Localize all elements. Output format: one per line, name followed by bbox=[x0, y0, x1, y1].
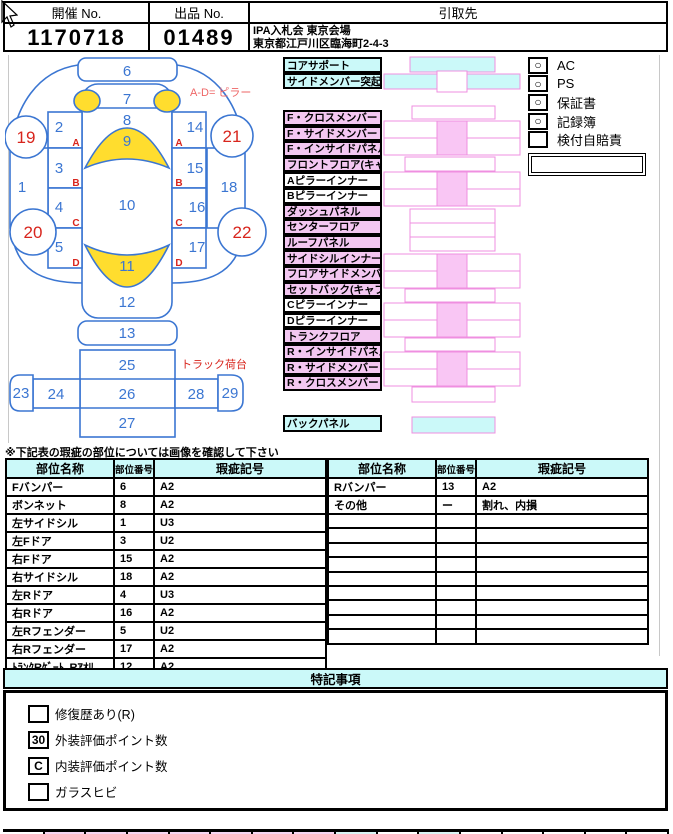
mirror-right bbox=[154, 90, 180, 112]
part-name-cell: 右サイドシル bbox=[6, 568, 114, 586]
auction-no-value: 1170718 bbox=[5, 24, 150, 52]
part-name-cell bbox=[328, 586, 436, 600]
zone-number: 10 bbox=[119, 197, 136, 214]
part-label-box: センターフロア bbox=[283, 219, 382, 235]
part-name-cell: 右Rドア bbox=[6, 604, 114, 622]
defect-code-cell bbox=[476, 629, 648, 643]
lot-no-value: 01489 bbox=[150, 24, 250, 52]
zone-number: 18 bbox=[221, 179, 238, 196]
option-label: 保証書 bbox=[557, 93, 596, 112]
option-label: 記録簿 bbox=[557, 112, 596, 131]
table-row: 左Rドア4U3 bbox=[6, 586, 326, 604]
special-item-label: 修復歴あり(R) bbox=[55, 704, 135, 723]
part-label-box: サイドメンバー突起部 bbox=[283, 73, 382, 89]
truck-bed-label: トラック荷台 bbox=[181, 357, 247, 371]
special-item: 30外装評価ポイント数 bbox=[28, 730, 168, 749]
zone-number: 5 bbox=[55, 239, 63, 256]
special-item-box[interactable]: 30 bbox=[28, 731, 49, 749]
options-panel: ○AC○PS○保証書○記録簿検付自賠責 bbox=[528, 56, 660, 149]
part-name-cell: ボンネット bbox=[6, 496, 114, 514]
part-name-cell bbox=[328, 557, 436, 571]
part-number-cell: 18 bbox=[114, 568, 154, 586]
option-row: ○記録簿 bbox=[528, 112, 660, 131]
defect-table-header-row: 部位名称部位番号瑕疵記号 bbox=[328, 459, 648, 478]
defect-code-cell: A2 bbox=[154, 604, 326, 622]
part-name-cell bbox=[328, 615, 436, 629]
zone-number: 16 bbox=[189, 199, 206, 216]
pillar-letter: A bbox=[175, 138, 182, 149]
part-number-cell: 3 bbox=[114, 532, 154, 550]
pillar-letter: B bbox=[72, 178, 79, 189]
option-checkbox[interactable] bbox=[528, 131, 548, 148]
part-label-box: Bピラーインナー bbox=[283, 188, 382, 204]
part-name-cell: 右Rフェンダー bbox=[6, 640, 114, 658]
table-row bbox=[328, 528, 648, 542]
part-label-box: サイドシルインナー bbox=[283, 250, 382, 266]
auction-no-label: 開催 No. bbox=[5, 3, 150, 22]
option-row: ○PS bbox=[528, 75, 660, 94]
pillar-letter: A bbox=[72, 138, 79, 149]
zone-number: 26 bbox=[119, 386, 136, 403]
part-number-cell bbox=[436, 557, 476, 571]
zone-number: 24 bbox=[48, 386, 65, 403]
special-item-label: 内装評価ポイント数 bbox=[55, 756, 168, 775]
zone-number: 7 bbox=[123, 91, 131, 108]
table-row bbox=[328, 557, 648, 571]
table-row bbox=[328, 572, 648, 586]
zone-number: 17 bbox=[189, 239, 206, 256]
table-row: Fバンパー6A2 bbox=[6, 478, 326, 496]
table-row: ボンネット8A2 bbox=[6, 496, 326, 514]
part-name-cell: Rバンパー bbox=[328, 478, 436, 496]
special-item-label: 外装評価ポイント数 bbox=[55, 730, 168, 749]
special-item-label: ガラスヒビ bbox=[55, 782, 117, 801]
pillar-letter: D bbox=[72, 258, 79, 269]
defect-code-cell: A2 bbox=[154, 550, 326, 568]
table-row: その他ー割れ、内損 bbox=[328, 496, 648, 514]
part-number-cell: 6 bbox=[114, 478, 154, 496]
pillar-letter: C bbox=[175, 218, 182, 229]
defect-code-cell bbox=[476, 543, 648, 557]
part-number-cell bbox=[436, 528, 476, 542]
zone-number: 14 bbox=[187, 119, 204, 136]
part-number-cell: 1 bbox=[114, 514, 154, 532]
part-name-cell bbox=[328, 600, 436, 614]
table-row: 右Rドア16A2 bbox=[6, 604, 326, 622]
option-checkbox[interactable]: ○ bbox=[528, 75, 548, 92]
special-item: ガラスヒビ bbox=[28, 782, 117, 801]
table-row: 左Rフェンダー5U2 bbox=[6, 622, 326, 640]
part-number-cell: 17 bbox=[114, 640, 154, 658]
defect-table-grid: 部位名称部位番号瑕疵記号Fバンパー6A2ボンネット8A2左サイドシル1U3左Fド… bbox=[5, 458, 327, 677]
defect-code-cell: A2 bbox=[154, 568, 326, 586]
zone-number: 27 bbox=[119, 415, 136, 432]
defect-code-cell bbox=[476, 586, 648, 600]
defect-code-cell bbox=[476, 514, 648, 528]
pillar-note: A-D= ピラー bbox=[190, 86, 251, 99]
wheel-number: 22 bbox=[233, 223, 252, 242]
defect-code-cell: A2 bbox=[154, 496, 326, 514]
defect-code-cell bbox=[476, 600, 648, 614]
defect-table-grid: 部位名称部位番号瑕疵記号Rバンパー13A2その他ー割れ、内損 bbox=[327, 458, 649, 645]
part-label-box: Cピラーインナー bbox=[283, 297, 382, 313]
part-label-box: F・サイドメンバー bbox=[283, 126, 382, 142]
table-row: 右サイドシル18A2 bbox=[6, 568, 326, 586]
zone-number: 2 bbox=[55, 119, 63, 136]
part-label-box: Dピラーインナー bbox=[283, 313, 382, 329]
part-number-cell bbox=[436, 615, 476, 629]
col-header-part-number: 部位番号 bbox=[114, 459, 154, 478]
defect-code-cell: U2 bbox=[154, 622, 326, 640]
zone-number: 12 bbox=[119, 294, 136, 311]
zone-number: 6 bbox=[123, 63, 131, 80]
mirror-left bbox=[74, 90, 100, 112]
part-name-cell: 左Rドア bbox=[6, 586, 114, 604]
part-name-cell bbox=[328, 528, 436, 542]
underbody-diagram bbox=[383, 55, 528, 440]
part-name-cell bbox=[328, 629, 436, 643]
part-label-box: ルーフパネル bbox=[283, 235, 382, 251]
table-row bbox=[328, 629, 648, 643]
wheel-number: 19 bbox=[17, 128, 36, 147]
option-checkbox[interactable]: ○ bbox=[528, 94, 548, 111]
part-number-cell: 8 bbox=[114, 496, 154, 514]
table-row bbox=[328, 543, 648, 557]
empty-field-box[interactable] bbox=[528, 153, 646, 176]
defect-code-cell: A2 bbox=[476, 478, 648, 496]
zone-number: 8 bbox=[123, 112, 131, 129]
part-name-cell: 左Fドア bbox=[6, 532, 114, 550]
part-number-cell: 16 bbox=[114, 604, 154, 622]
part-number-cell bbox=[436, 600, 476, 614]
pillar-letter: B bbox=[175, 178, 182, 189]
defect-code-cell bbox=[476, 572, 648, 586]
part-label-box: R・インサイドパネル bbox=[283, 344, 382, 360]
special-item-box[interactable] bbox=[28, 783, 49, 801]
part-name-cell bbox=[328, 543, 436, 557]
part-label-box: セットバック(キャブ背) bbox=[283, 282, 382, 298]
pickup-label: 引取先 bbox=[250, 3, 666, 22]
part-name-cell: 左サイドシル bbox=[6, 514, 114, 532]
zone-number: 1 bbox=[18, 179, 26, 196]
col-header-defect-code: 瑕疵記号 bbox=[476, 459, 648, 478]
part-labels-group-bottom: バックパネル bbox=[283, 415, 382, 432]
part-number-cell: 15 bbox=[114, 550, 154, 568]
table-row: 左サイドシル1U3 bbox=[6, 514, 326, 532]
zone-number: 4 bbox=[55, 199, 63, 216]
car-zone-diagram: 6 7 8 9 10 11 12 13 2 3 4 5 1 14 15 16 1… bbox=[5, 55, 283, 445]
part-name-cell bbox=[328, 514, 436, 528]
table-row bbox=[328, 600, 648, 614]
part-number-cell: 5 bbox=[114, 622, 154, 640]
defect-table-right: 部位名称部位番号瑕疵記号Rバンパー13A2その他ー割れ、内損 bbox=[327, 458, 649, 677]
defect-code-cell: A2 bbox=[154, 478, 326, 496]
table-row: 右Rフェンダー17A2 bbox=[6, 640, 326, 658]
table-row: 左Fドア3U2 bbox=[6, 532, 326, 550]
part-label-box: F・インサイドパネル bbox=[283, 141, 382, 157]
header-value-row: 1170718 01489 IPA入札会 東京会場 東京都江戸川区臨海町2-4-… bbox=[5, 24, 666, 52]
part-label-box: トランクフロア bbox=[283, 328, 382, 344]
part-labels-group-main: F・クロスメンバーF・サイドメンバーF・インサイドパネルフロントフロア(キャブ床… bbox=[283, 110, 382, 391]
zone-number: 9 bbox=[123, 133, 131, 150]
part-number-cell bbox=[436, 514, 476, 528]
part-labels-group-top: コアサポートサイドメンバー突起部 bbox=[283, 57, 382, 89]
header-table: 開催 No. 出品 No. 引取先 1170718 01489 IPA入札会 東… bbox=[3, 1, 668, 52]
lot-no-label: 出品 No. bbox=[150, 3, 250, 22]
defect-code-cell: U3 bbox=[154, 514, 326, 532]
part-label-box: コアサポート bbox=[283, 57, 382, 73]
col-header-part-name: 部位名称 bbox=[6, 459, 114, 478]
defect-code-cell: U3 bbox=[154, 586, 326, 604]
special-notes-header: 特記事項 bbox=[3, 668, 668, 689]
option-checkbox[interactable]: ○ bbox=[528, 57, 548, 74]
part-label-box: フロントフロア(キャブ床) bbox=[283, 157, 382, 173]
defect-code-cell: U2 bbox=[154, 532, 326, 550]
special-item: 修復歴あり(R) bbox=[28, 704, 135, 723]
defect-table-left: 部位名称部位番号瑕疵記号Fバンパー6A2ボンネット8A2左サイドシル1U3左Fド… bbox=[5, 458, 327, 677]
part-name-cell: 左Rフェンダー bbox=[6, 622, 114, 640]
option-checkbox[interactable]: ○ bbox=[528, 113, 548, 130]
part-label-box: R・サイドメンバー bbox=[283, 360, 382, 376]
part-number-cell: 13 bbox=[436, 478, 476, 496]
option-row: 検付自賠責 bbox=[528, 130, 660, 149]
zone-number: 3 bbox=[55, 160, 63, 177]
part-name-cell bbox=[328, 572, 436, 586]
zone-number: 23 bbox=[13, 385, 30, 402]
pillar-letter: C bbox=[72, 218, 79, 229]
part-label-box: フロアサイドメンバー bbox=[283, 266, 382, 282]
option-row: ○保証書 bbox=[528, 93, 660, 112]
part-label-box: バックパネル bbox=[283, 415, 382, 432]
zone-number: 13 bbox=[119, 325, 136, 342]
option-label: 検付自賠責 bbox=[557, 130, 622, 149]
part-label-box: ダッシュパネル bbox=[283, 204, 382, 220]
part-number-cell bbox=[436, 586, 476, 600]
col-header-part-name: 部位名称 bbox=[328, 459, 436, 478]
col-header-defect-code: 瑕疵記号 bbox=[154, 459, 326, 478]
part-number-cell bbox=[436, 543, 476, 557]
special-item-box[interactable] bbox=[28, 705, 49, 723]
zone-number: 29 bbox=[222, 385, 239, 402]
pillar-letter: D bbox=[175, 258, 182, 269]
defect-tables: 部位名称部位番号瑕疵記号Fバンパー6A2ボンネット8A2左サイドシル1U3左Fド… bbox=[5, 458, 649, 677]
bottom-partial-row bbox=[3, 829, 669, 834]
defect-code-cell bbox=[476, 528, 648, 542]
defect-code-cell bbox=[476, 557, 648, 571]
option-row: ○AC bbox=[528, 56, 660, 75]
table-row: Rバンパー13A2 bbox=[328, 478, 648, 496]
table-row bbox=[328, 615, 648, 629]
part-label-box: F・クロスメンバー bbox=[283, 110, 382, 126]
part-name-cell: 右Fドア bbox=[6, 550, 114, 568]
defect-code-cell bbox=[476, 615, 648, 629]
special-item-box[interactable]: C bbox=[28, 757, 49, 775]
special-notes-box: 修復歴あり(R)30外装評価ポイント数C内装評価ポイント数ガラスヒビ bbox=[3, 690, 668, 811]
pickup-value: IPA入札会 東京会場 東京都江戸川区臨海町2-4-3 bbox=[250, 24, 666, 52]
table-row bbox=[328, 514, 648, 528]
zone-number: 15 bbox=[187, 160, 204, 177]
part-name-cell: Fバンパー bbox=[6, 478, 114, 496]
part-name-cell: その他 bbox=[328, 496, 436, 514]
zone-number: 11 bbox=[119, 258, 135, 275]
part-number-cell: 4 bbox=[114, 586, 154, 604]
part-number-cell: ー bbox=[436, 496, 476, 514]
defect-code-cell: 割れ、内損 bbox=[476, 496, 648, 514]
zone-number: 25 bbox=[119, 357, 136, 374]
table-row: 右Fドア15A2 bbox=[6, 550, 326, 568]
defect-table-header-row: 部位名称部位番号瑕疵記号 bbox=[6, 459, 326, 478]
wheel-number: 21 bbox=[223, 127, 242, 146]
special-item: C内装評価ポイント数 bbox=[28, 756, 168, 775]
zone-number: 28 bbox=[188, 386, 205, 403]
part-label-box: Aピラーインナー bbox=[283, 172, 382, 188]
table-row bbox=[328, 586, 648, 600]
option-label: AC bbox=[557, 58, 575, 73]
pickup-venue: IPA入札会 東京会場 bbox=[253, 25, 663, 38]
pickup-address: 東京都江戸川区臨海町2-4-3 bbox=[253, 38, 663, 51]
part-number-cell bbox=[436, 572, 476, 586]
header-label-row: 開催 No. 出品 No. 引取先 bbox=[5, 3, 666, 24]
col-header-part-number: 部位番号 bbox=[436, 459, 476, 478]
option-label: PS bbox=[557, 76, 574, 91]
part-label-box: R・クロスメンバー bbox=[283, 375, 382, 391]
wheel-number: 20 bbox=[24, 223, 43, 242]
part-number-cell bbox=[436, 629, 476, 643]
defect-code-cell: A2 bbox=[154, 640, 326, 658]
